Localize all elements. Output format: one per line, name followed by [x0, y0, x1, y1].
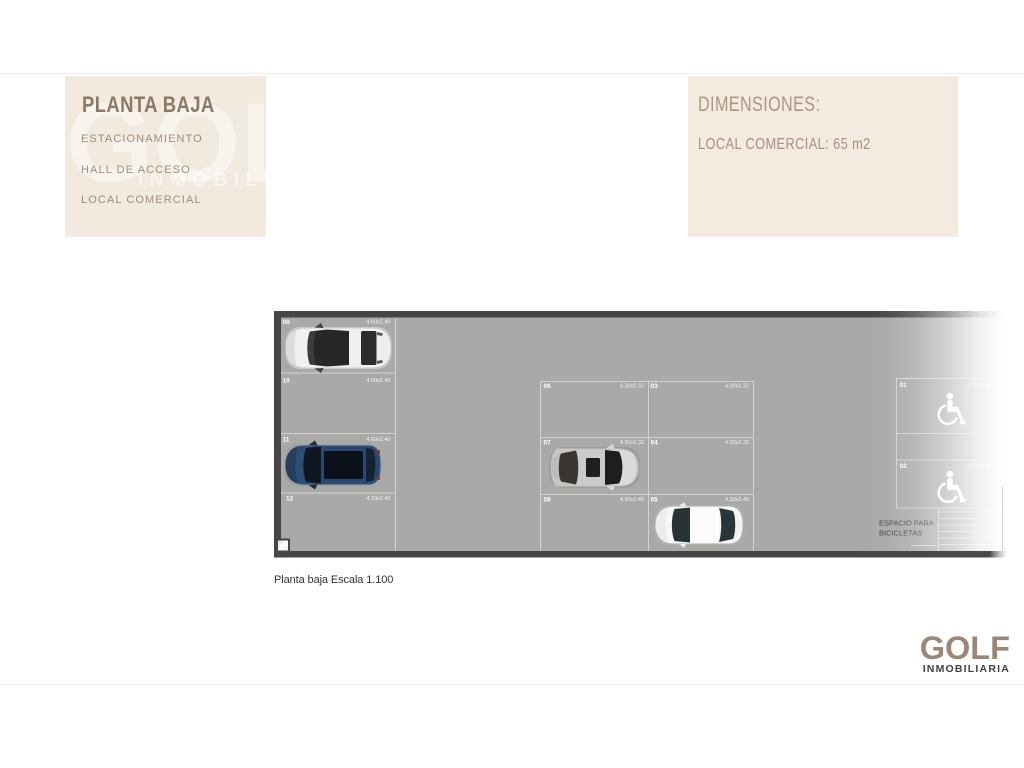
svg-text:4.30x2.40: 4.30x2.40: [725, 497, 749, 503]
svg-text:05: 05: [651, 497, 659, 504]
svg-text:4.60x2.40: 4.60x2.40: [366, 378, 390, 384]
svg-text:4.30x2.40: 4.30x2.40: [620, 497, 644, 503]
svg-text:10: 10: [283, 378, 291, 385]
svg-text:03: 03: [651, 383, 659, 390]
svg-text:08: 08: [544, 497, 552, 504]
svg-text:4.30x2.32: 4.30x2.32: [725, 384, 749, 390]
svg-text:4.30x2.32: 4.30x2.32: [620, 440, 644, 446]
svg-text:09: 09: [283, 319, 291, 326]
svg-text:07: 07: [544, 440, 552, 447]
svg-text:11: 11: [283, 437, 290, 444]
svg-text:4.30x2.32: 4.30x2.32: [725, 440, 749, 446]
svg-text:06: 06: [544, 383, 552, 390]
svg-text:4.60x2.40: 4.60x2.40: [366, 437, 390, 443]
svg-text:4.30x2.40: 4.30x2.40: [366, 496, 390, 502]
svg-text:4.30x2.32: 4.30x2.32: [620, 384, 644, 390]
svg-text:4.60x2.40: 4.60x2.40: [366, 320, 390, 326]
svg-text:04: 04: [651, 440, 659, 447]
svg-text:12: 12: [286, 496, 294, 503]
